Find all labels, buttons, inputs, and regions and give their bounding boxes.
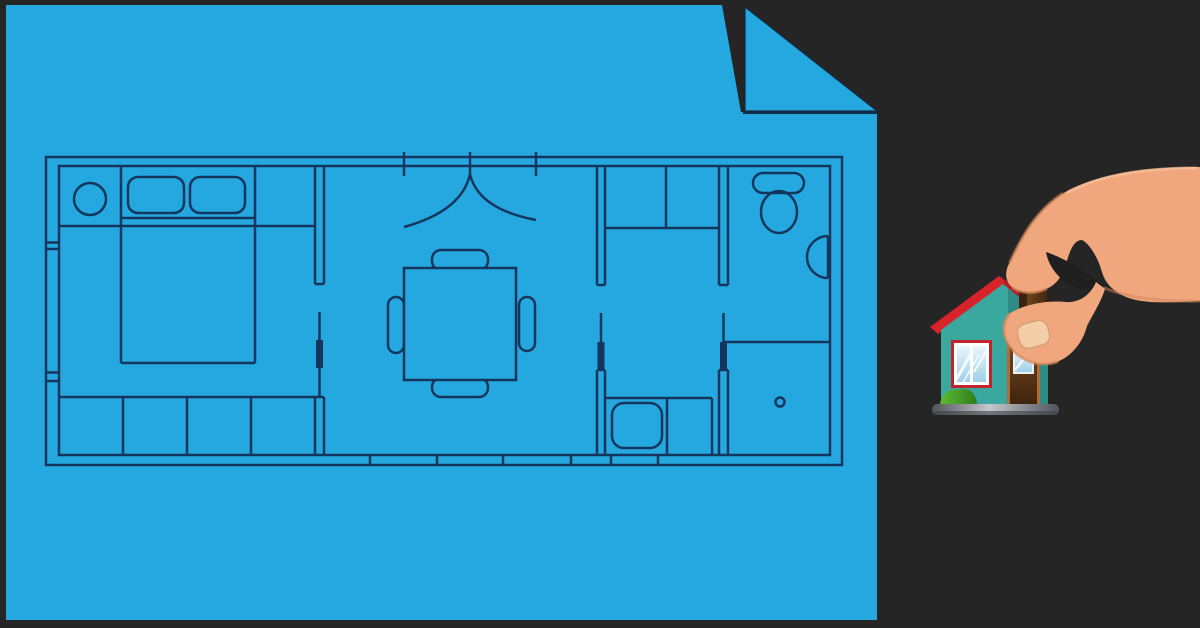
dining-table <box>404 268 516 380</box>
illustration-stage <box>0 0 1200 628</box>
house-window <box>951 340 992 388</box>
dining-set <box>388 250 535 397</box>
house-base-shadow <box>934 411 1057 415</box>
